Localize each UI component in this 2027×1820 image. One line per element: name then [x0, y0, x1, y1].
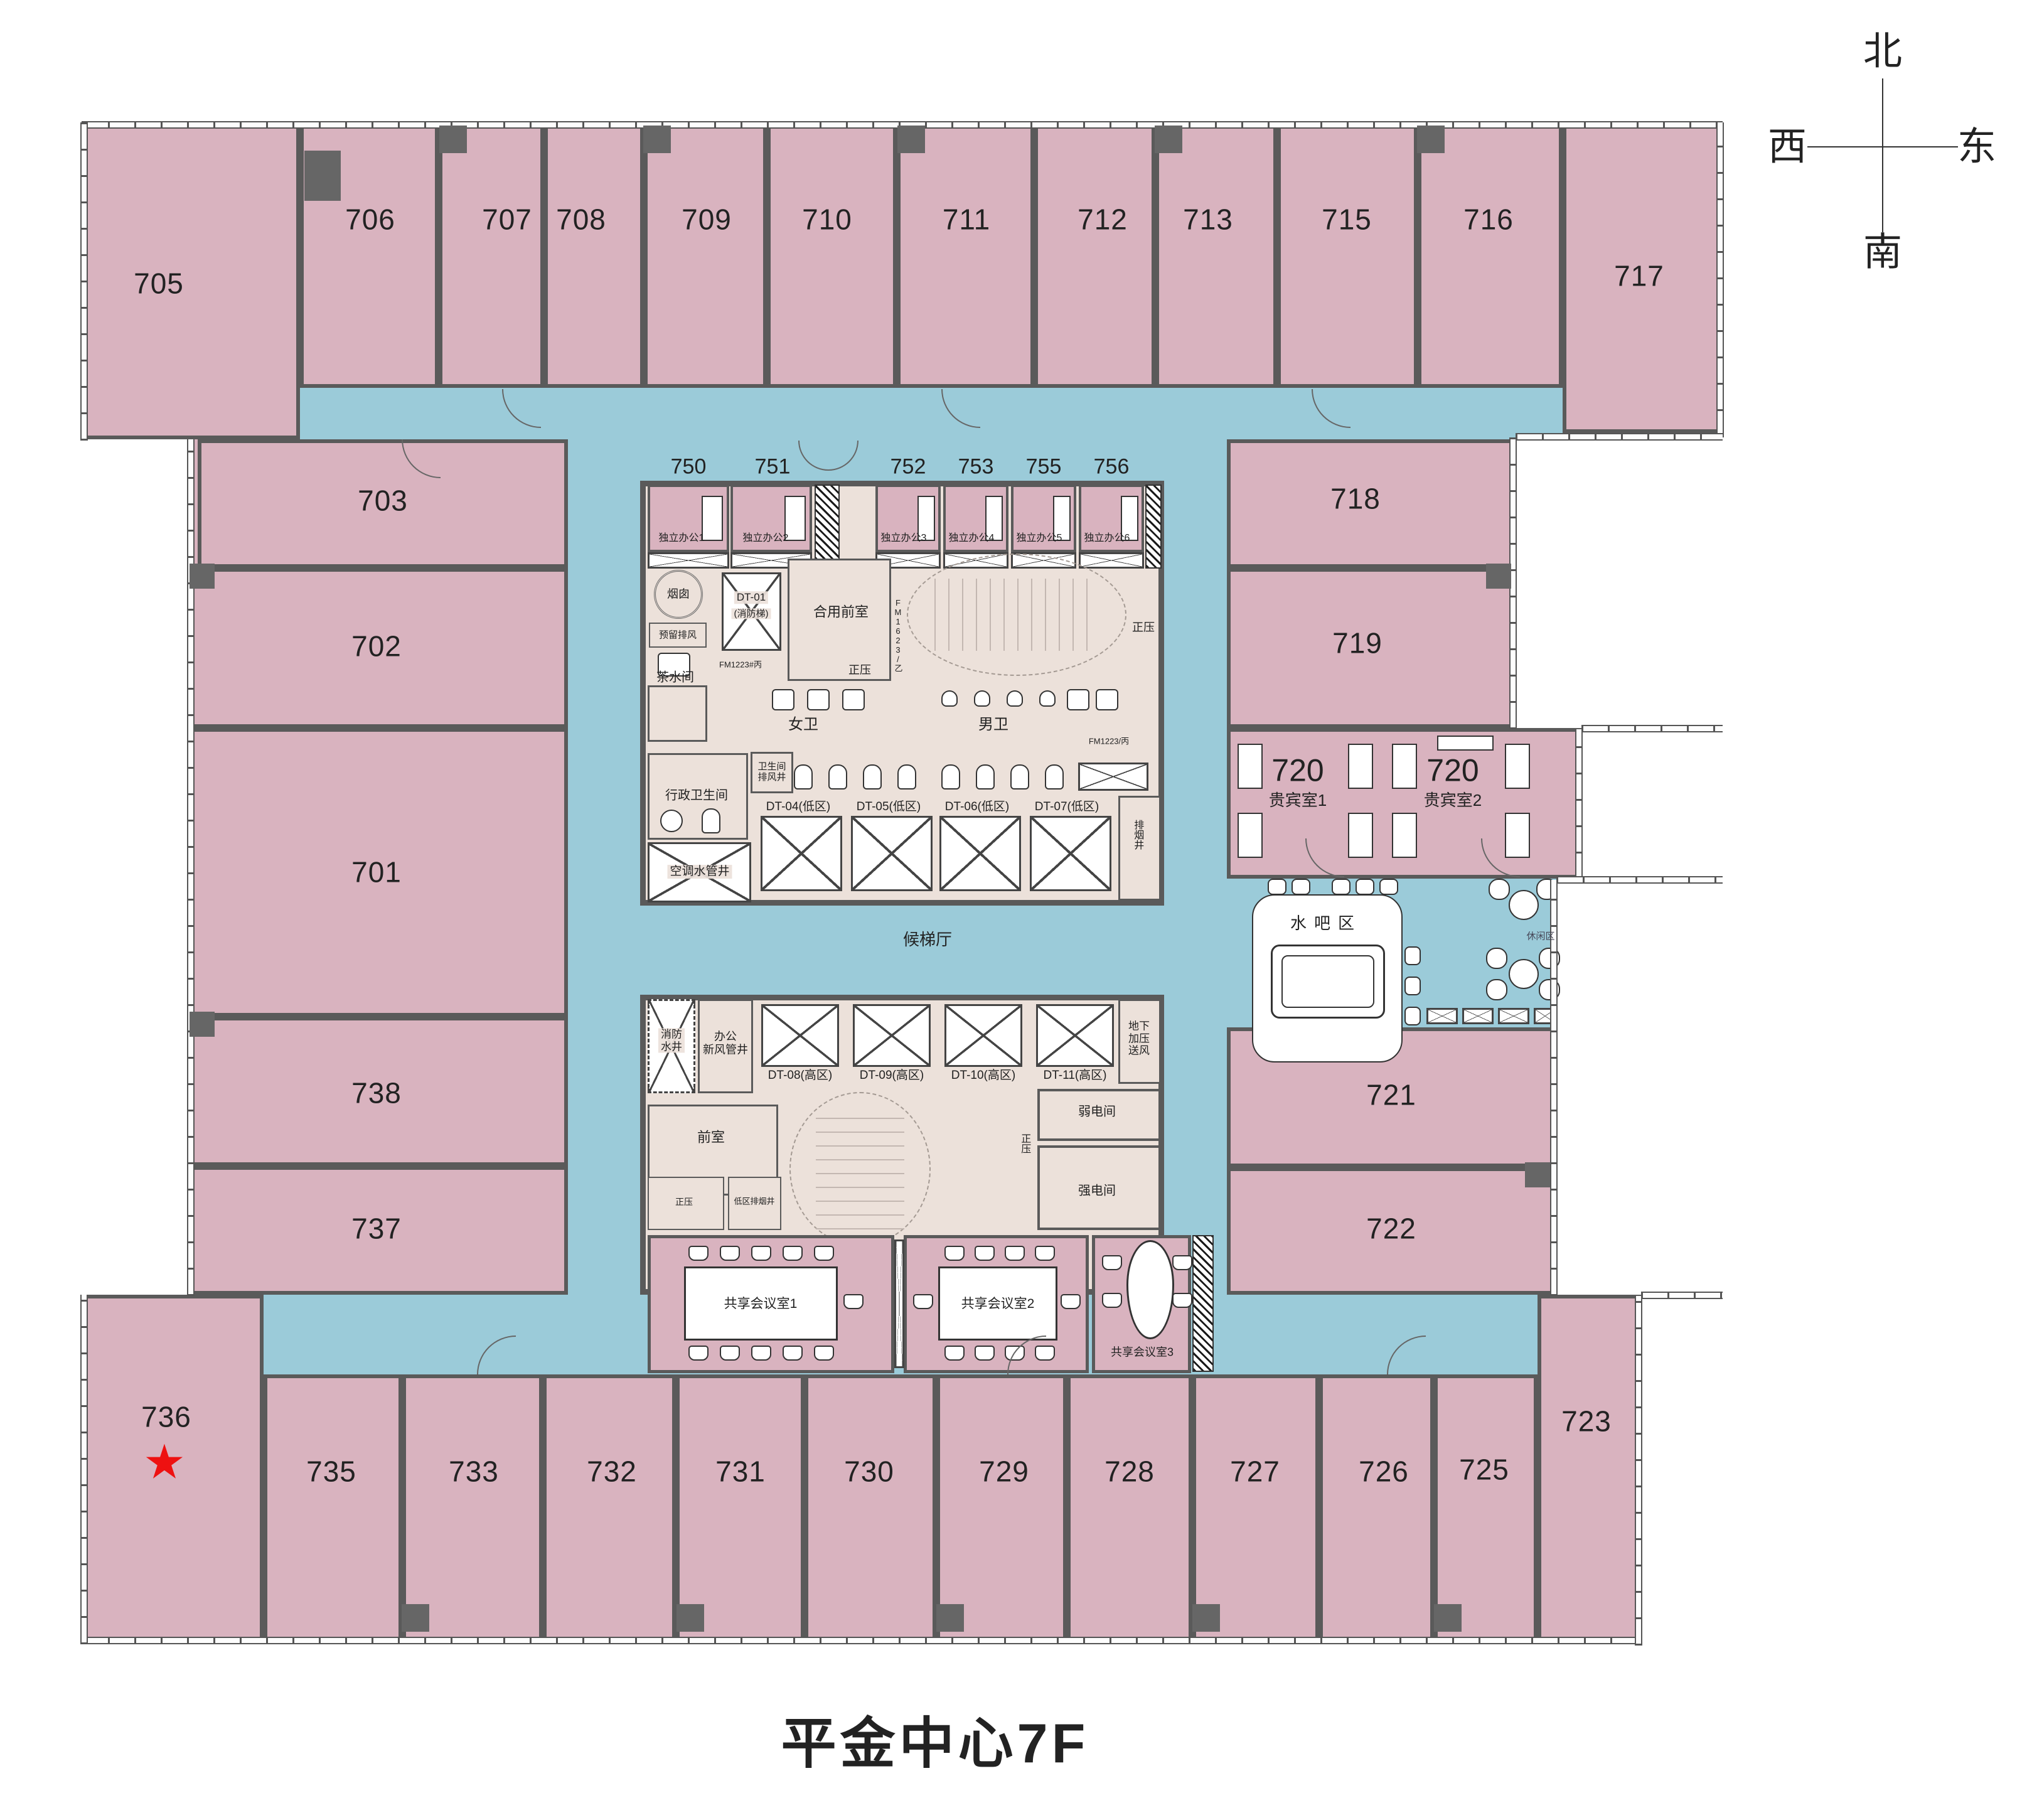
door-label-fm1223b: FM1223/丙: [1089, 737, 1129, 747]
strong-power-label: 强电间: [1078, 1184, 1116, 1199]
chair-icon: [814, 1246, 834, 1261]
room-label-717: 717: [1614, 260, 1664, 293]
room-708: [544, 122, 644, 388]
column: [1525, 1162, 1550, 1187]
column: [1192, 1604, 1220, 1632]
toilet-icon: [702, 808, 720, 833]
stairs-lower: [789, 1092, 931, 1246]
facade-left-736: [80, 1295, 88, 1644]
door-label-fm1223a: FM1223#丙: [719, 661, 762, 670]
room-label-736: 736: [141, 1401, 191, 1434]
room-709: [644, 122, 767, 388]
chair-icon: [1102, 1255, 1122, 1270]
fresh-air-line1: 办公: [703, 1030, 748, 1043]
elevator-dt05-label: DT-05(低区): [857, 800, 921, 814]
room-label-711: 711: [943, 203, 990, 237]
room-label-702: 702: [351, 630, 402, 663]
bar-stool: [1292, 879, 1310, 895]
room-732: [543, 1374, 676, 1644]
elevator-hall-label: 候梯厅: [903, 931, 952, 950]
column: [677, 1604, 704, 1632]
office-name-756: 独立办公6: [1084, 533, 1130, 544]
facade-right-717: [1716, 122, 1724, 437]
room-label-732: 732: [587, 1455, 637, 1489]
sofa-icon: [1392, 813, 1417, 858]
front-room-label: 前室: [697, 1129, 725, 1145]
chair-icon: [720, 1246, 740, 1261]
office-label-753: 753: [958, 454, 994, 479]
office-name-752: 独立办公3: [881, 533, 927, 544]
room-label-716: 716: [1463, 203, 1514, 237]
room-730: [805, 1374, 936, 1644]
water-bar-label: 水吧区: [1290, 914, 1362, 933]
room-label-707: 707: [482, 203, 532, 237]
vent-strip: [648, 552, 729, 569]
room-label-718: 718: [1330, 483, 1381, 516]
planter-box: [1462, 1008, 1494, 1024]
room-label-738: 738: [351, 1077, 402, 1110]
room-735: [264, 1374, 402, 1644]
column: [190, 564, 215, 589]
pos-pressure-label-2: 正压: [848, 664, 871, 677]
meeting1-label: 共享会议室1: [724, 1297, 798, 1312]
planter-box: [1498, 1008, 1529, 1024]
facade-notch-left: [82, 439, 188, 1295]
elevator-dt06-label: DT-06(低区): [945, 800, 1009, 814]
wc-exhaust-line1: 卫生间: [757, 761, 786, 772]
elevator-dt05-shaft: [851, 816, 933, 891]
elevator-dt08-label: DT-08(高区): [768, 1069, 832, 1083]
tv-icon: [1437, 736, 1494, 751]
column: [1417, 126, 1445, 153]
toilet-icon: [863, 764, 882, 790]
womens-wc-label: 女卫: [788, 716, 818, 734]
chair-icon: [814, 1346, 834, 1361]
chair-icon: [1102, 1293, 1122, 1308]
room-label-721: 721: [1366, 1079, 1416, 1112]
wc-exhaust-label: 卫生间 排风井: [757, 761, 786, 783]
fire-water-label: 消防 水井: [658, 1028, 685, 1052]
room-715: [1277, 122, 1418, 388]
room-label-705: 705: [134, 267, 184, 301]
sofa-icon: [1238, 813, 1263, 858]
chair-icon: [843, 1294, 864, 1309]
toilet-icon: [941, 764, 960, 790]
chair-icon: [1172, 1255, 1192, 1270]
shared-front-label: 合用前室: [813, 604, 869, 619]
vent-strip: [1079, 552, 1144, 569]
office-name-753: 独立办公4: [949, 533, 995, 544]
corridor-left: [568, 481, 640, 1295]
facade-notch-723: [1641, 1295, 1723, 1644]
chair-icon: [688, 1346, 709, 1361]
fresh-air-label: 办公 新风管井: [703, 1030, 748, 1056]
chimney-label: 烟囱: [665, 588, 692, 601]
bar-stool: [1356, 879, 1374, 895]
toilet-icon: [897, 764, 916, 790]
meeting3-label: 共享会议室3: [1111, 1346, 1174, 1359]
lounge-chair: [1489, 879, 1510, 900]
column: [936, 1604, 964, 1632]
lounge-label: 休闲区: [1526, 931, 1554, 941]
elevator-dt11-shaft: [1036, 1004, 1114, 1067]
room-726: [1319, 1374, 1434, 1644]
column: [190, 1012, 215, 1037]
underground-air-line3: 送风: [1128, 1045, 1150, 1057]
toilet-icon: [1010, 764, 1029, 790]
office-label-750: 750: [671, 454, 707, 479]
pos-pressure-label-1: 正压: [1132, 621, 1155, 634]
corridor-elevator-hall: [640, 906, 1164, 995]
elevator-dt01-label2: (消防梯): [732, 608, 771, 619]
chair-icon: [1035, 1246, 1055, 1261]
room-label-723: 723: [1561, 1405, 1612, 1438]
elevator-dt06-shaft: [939, 816, 1021, 891]
room-label-720b: 720: [1426, 752, 1479, 789]
office-name-750: 独立办公1: [659, 533, 705, 544]
chair-icon: [975, 1346, 995, 1361]
chair-icon: [913, 1294, 933, 1309]
vent-strip: [894, 1239, 904, 1368]
elevator-dt10-label: DT-10(高区): [951, 1069, 1015, 1083]
facade-notch-h3: [1581, 725, 1723, 732]
corridor-top: [300, 388, 1563, 439]
sink-icon: [807, 689, 830, 710]
chair-icon: [751, 1346, 771, 1361]
compass-east: 东: [1957, 124, 1996, 169]
room-711: [897, 122, 1034, 388]
office-label-751: 751: [755, 454, 791, 479]
facade-notch-right-lower: [1556, 879, 1723, 1295]
ac-shaft-label: 空调水管井: [667, 865, 732, 879]
chair-icon: [944, 1346, 965, 1361]
chair-icon: [720, 1346, 740, 1361]
exec-wc-label: 行政卫生间: [665, 789, 728, 803]
stairs-upper: [907, 554, 1126, 676]
compass: 北 南 西 东: [1770, 13, 2021, 276]
room-label-735: 735: [306, 1455, 356, 1489]
weak-power-label: 弱电间: [1078, 1105, 1116, 1120]
elevator-dt04-label: DT-04(低区): [766, 800, 830, 814]
room-723: [1538, 1295, 1641, 1644]
sink-icon: [1067, 689, 1089, 710]
stair-treads: [934, 579, 1099, 651]
shaft-strip: [1078, 763, 1148, 791]
planter: [1145, 484, 1162, 569]
tea-room-label: 茶水间: [656, 671, 694, 685]
chair-icon: [1172, 1293, 1192, 1308]
star-marker: ★: [143, 1435, 186, 1489]
facade-right-vip: [1575, 729, 1583, 880]
smoke-shaft-label: 排烟井: [1131, 820, 1143, 850]
stair-treads: [816, 1108, 904, 1229]
sofa-icon: [1348, 813, 1373, 858]
elevator-dt07-shaft: [1030, 816, 1111, 891]
vip-room2-label: 贵宾室2: [1424, 791, 1482, 810]
urinal-icon: [974, 690, 990, 707]
fresh-air-line2: 新风管井: [703, 1043, 748, 1056]
column: [304, 151, 341, 201]
door-label-fm1623: FM1623/乙: [893, 598, 902, 672]
facade-notch-right-vip: [1581, 728, 1723, 879]
facade-notch-h4: [1641, 1292, 1723, 1299]
underground-air-line2: 加压: [1128, 1032, 1150, 1045]
underground-air-label: 地下 加压 送风: [1128, 1020, 1150, 1057]
column: [897, 126, 925, 153]
room-label-719: 719: [1332, 627, 1383, 660]
room-728: [1067, 1374, 1192, 1644]
toilet-icon: [828, 764, 847, 790]
room-712: [1034, 122, 1155, 388]
fire-water-line2: 水井: [661, 1041, 682, 1053]
wc-exhaust-line2: 排风井: [757, 772, 786, 783]
room-707: [439, 122, 544, 388]
chair-icon: [975, 1246, 995, 1261]
chair-icon: [1061, 1294, 1081, 1309]
column: [1434, 1604, 1462, 1632]
tea-room: [648, 685, 707, 742]
desk-icon: [702, 496, 723, 541]
sofa-icon: [1348, 744, 1373, 789]
compass-line-vertical: [1882, 78, 1883, 232]
facade-notch-h2: [1556, 876, 1723, 884]
room-705-block: [82, 122, 300, 439]
elevator-dt04-shaft: [761, 816, 842, 891]
compass-north: 北: [1863, 29, 1902, 73]
office-name-751: 独立办公2: [743, 533, 789, 544]
elevator-dt01-label1: DT-01: [734, 591, 768, 604]
counter-inner: [1281, 955, 1374, 1008]
fire-water-line1: 消防: [661, 1028, 682, 1041]
office-label-752: 752: [890, 454, 926, 479]
facade-bottom: [82, 1637, 1642, 1644]
planter: [1192, 1235, 1214, 1372]
elevator-dt08-shaft: [761, 1004, 839, 1067]
column: [1486, 564, 1511, 589]
room-716: [1418, 122, 1563, 388]
toilet-icon: [976, 764, 995, 790]
compass-south: 南: [1863, 230, 1902, 274]
low-smoke-label: 低区排烟井: [734, 1197, 774, 1207]
sink-icon: [842, 689, 865, 710]
office-label-756: 756: [1094, 454, 1130, 479]
meeting2-label: 共享会议室2: [961, 1297, 1035, 1312]
sink-icon: [772, 689, 794, 710]
facade-right-721: [1550, 880, 1558, 1296]
bar-stool: [1379, 879, 1398, 895]
bar-stool: [1404, 1007, 1421, 1025]
sofa-icon: [1392, 744, 1417, 789]
facade-right-723: [1635, 1296, 1642, 1646]
column: [402, 1604, 429, 1632]
office-name-755: 独立办公5: [1017, 533, 1062, 544]
room-label-722: 722: [1366, 1212, 1416, 1246]
corridor-right: [1164, 481, 1227, 1295]
bar-stool: [1268, 879, 1286, 895]
sink-icon: [660, 810, 683, 832]
urinal-icon: [941, 690, 958, 707]
room-label-730: 730: [844, 1455, 894, 1489]
column: [439, 126, 467, 153]
room-label-713: 713: [1183, 203, 1233, 237]
compass-west: 西: [1768, 124, 1807, 169]
room-label-701: 701: [351, 856, 402, 889]
room-label-703: 703: [358, 484, 408, 518]
room-label-725: 725: [1459, 1453, 1509, 1487]
room-label-709: 709: [682, 203, 732, 237]
room-label-727: 727: [1230, 1455, 1280, 1489]
urinal-icon: [1007, 690, 1023, 707]
floor-plan-canvas: 705 706 707 708 709 710 711 712 713 715 …: [0, 0, 2027, 1820]
bar-stool: [1332, 879, 1350, 895]
column: [643, 126, 671, 153]
urinal-icon: [1039, 690, 1056, 707]
room-label-712: 712: [1078, 203, 1128, 237]
sofa-icon: [1505, 744, 1530, 789]
room-710: [767, 122, 897, 388]
lounge-table: [1509, 959, 1539, 989]
planter: [815, 484, 840, 569]
room-label-720a: 720: [1271, 752, 1324, 789]
elevator-dt07-label: DT-07(低区): [1035, 800, 1099, 814]
column: [1155, 126, 1182, 153]
elevator-dt09-label: DT-09(高区): [860, 1069, 924, 1083]
facade-left-705: [80, 122, 88, 441]
office-label-755: 755: [1026, 454, 1062, 479]
compass-line-horizontal: [1807, 146, 1958, 147]
chair-icon: [783, 1346, 803, 1361]
room-label-729: 729: [979, 1455, 1029, 1489]
toilet-icon: [794, 764, 813, 790]
chair-icon: [783, 1246, 803, 1261]
room-label-715: 715: [1322, 203, 1372, 237]
sofa-icon: [1238, 744, 1263, 789]
chair-icon: [944, 1246, 965, 1261]
pos-pressure-label-4: 正压: [1019, 1133, 1030, 1154]
reserved-exhaust-label: 预留排风: [659, 629, 697, 640]
room-label-726: 726: [1359, 1455, 1409, 1489]
page-title: 平金中心7F: [781, 1711, 1089, 1775]
sink-icon: [1096, 689, 1118, 710]
bar-stool: [1404, 977, 1421, 995]
lounge-table: [1509, 890, 1539, 920]
pos-pressure-label-3: 正压: [675, 1197, 693, 1207]
room-label-710: 710: [802, 203, 852, 237]
mens-wc-label: 男卫: [978, 716, 1008, 734]
room-label-728: 728: [1104, 1455, 1155, 1489]
toilet-icon: [1045, 764, 1064, 790]
facade-notch-h1: [1516, 433, 1723, 441]
lounge-chair: [1486, 979, 1507, 1000]
underground-air-line1: 地下: [1128, 1020, 1150, 1033]
room-label-706: 706: [345, 203, 395, 237]
chair-icon: [1005, 1246, 1025, 1261]
lounge-chair: [1486, 948, 1507, 969]
chair-icon: [751, 1246, 771, 1261]
room-label-731: 731: [715, 1455, 766, 1489]
facade-notch-right-upper: [1516, 436, 1723, 728]
chair-icon: [688, 1246, 709, 1261]
elevator-dt11-label: DT-11(高区): [1044, 1069, 1107, 1083]
vip-room1-label: 贵宾室1: [1269, 791, 1327, 810]
room-713: [1155, 122, 1277, 388]
bar-stool: [1404, 946, 1421, 965]
room-label-733: 733: [449, 1455, 499, 1489]
planter-box: [1426, 1008, 1458, 1024]
elevator-dt09-shaft: [853, 1004, 931, 1067]
room-label-708: 708: [556, 203, 606, 237]
elevator-dt10-shaft: [944, 1004, 1022, 1067]
room-label-737: 737: [351, 1212, 402, 1246]
